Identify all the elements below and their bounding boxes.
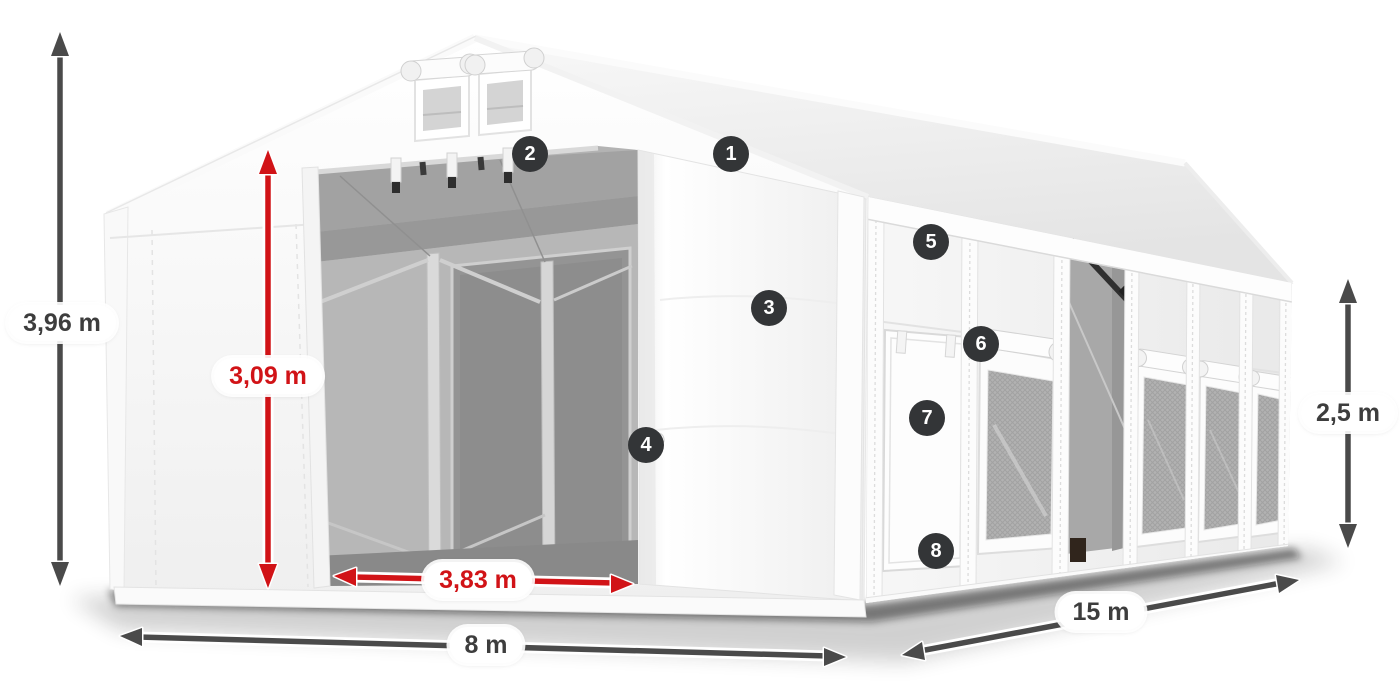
callout-badge-5: 5 (913, 224, 949, 260)
interior-pole (427, 253, 441, 587)
corner-strap-column (834, 191, 864, 600)
callout-badge-2: 2 (512, 136, 548, 172)
callout-badge-3: 3 (751, 290, 787, 326)
callout-badge-4: 4 (628, 427, 664, 463)
door-height-label: 3,09 m (214, 358, 322, 394)
side-length-label: 15 m (1058, 594, 1145, 630)
front-door-panel (638, 150, 866, 601)
front-corner-column (104, 207, 128, 591)
interior-pole (541, 261, 555, 586)
ground-anchor-plate (1070, 538, 1086, 562)
product-dimension-diagram: 3,96 m 3,09 m 3,83 m 8 m 15 m 2,5 m 1 2 … (0, 0, 1400, 700)
side-open-bay (1066, 240, 1132, 562)
callout-badge-8: 8 (918, 533, 954, 569)
door-width-label: 3,83 m (424, 562, 532, 598)
front-door-opening (302, 146, 638, 588)
total-height-label: 3,96 m (8, 305, 116, 341)
tent-illustration (0, 0, 1400, 700)
callout-badge-7: 7 (909, 400, 945, 436)
callout-badge-1: 1 (713, 136, 749, 172)
front-width-label: 8 m (449, 627, 522, 663)
side-height-label: 2,5 m (1301, 395, 1395, 431)
callout-badge-6: 6 (963, 326, 999, 362)
